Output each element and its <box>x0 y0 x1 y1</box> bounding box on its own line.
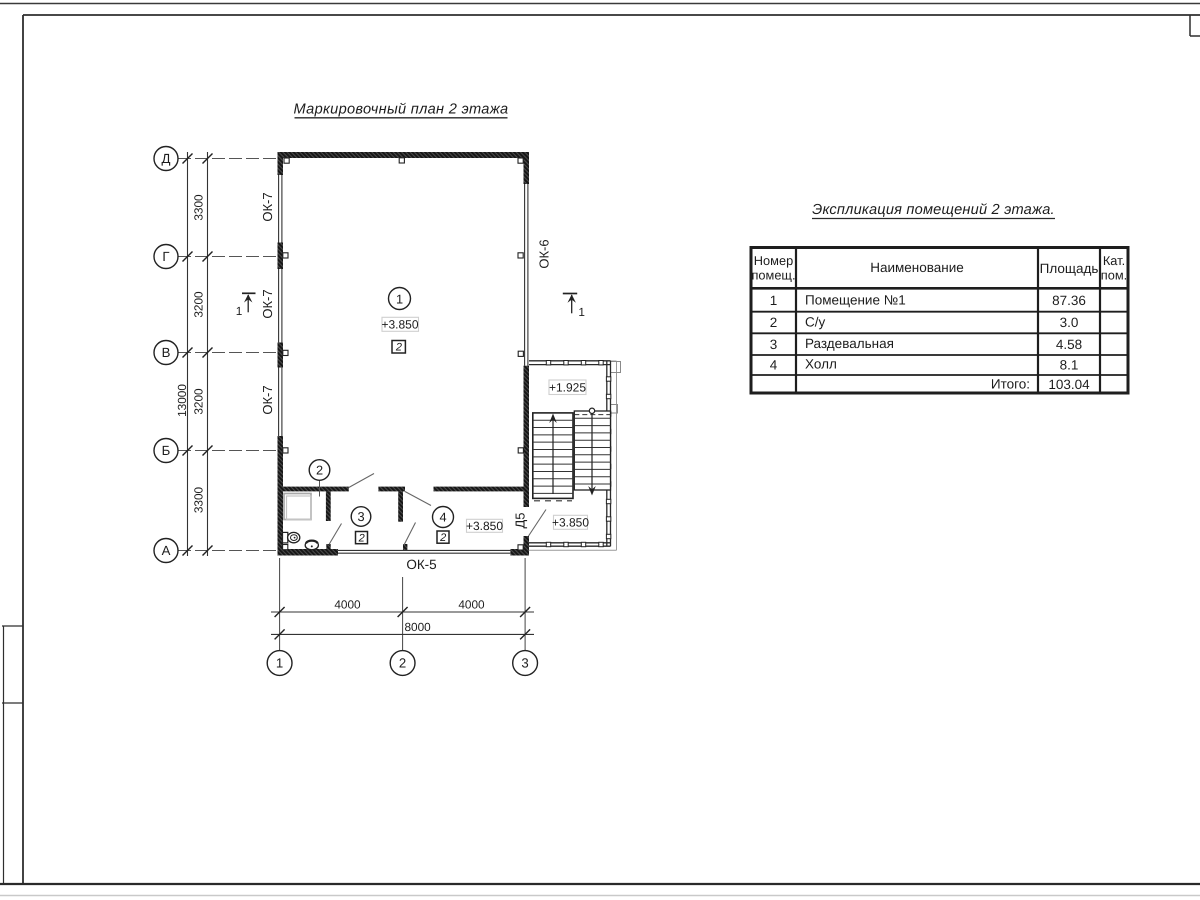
svg-text:13000: 13000 <box>175 384 189 417</box>
svg-text:4000: 4000 <box>334 598 361 612</box>
svg-text:Д: Д <box>162 151 171 166</box>
svg-text:3300: 3300 <box>192 194 206 221</box>
svg-text:пом.: пом. <box>1101 268 1127 283</box>
svg-text:Б: Б <box>162 443 171 458</box>
svg-text:ОК-7: ОК-7 <box>260 289 275 318</box>
svg-text:помещ.: помещ. <box>751 268 795 283</box>
svg-text:3: 3 <box>521 656 528 671</box>
svg-text:С/у: С/у <box>805 314 826 329</box>
svg-text:Номер: Номер <box>754 253 793 268</box>
svg-text:103.04: 103.04 <box>1048 377 1090 392</box>
svg-text:+3.850: +3.850 <box>381 318 418 332</box>
svg-text:ОК-5: ОК-5 <box>406 557 436 572</box>
svg-text:Холл: Холл <box>805 357 837 372</box>
svg-text:2: 2 <box>395 342 402 354</box>
svg-text:ОК-7: ОК-7 <box>260 385 275 414</box>
svg-text:8.1: 8.1 <box>1060 357 1079 372</box>
svg-text:3: 3 <box>770 337 778 352</box>
svg-text:1: 1 <box>578 305 585 319</box>
svg-text:В: В <box>162 345 171 360</box>
svg-text:Д5: Д5 <box>513 512 528 528</box>
svg-text:Маркировочный план 2 этажа: Маркировочный план 2 этажа <box>294 102 509 118</box>
svg-text:2: 2 <box>399 656 406 671</box>
svg-text:1: 1 <box>236 304 243 318</box>
svg-text:Г: Г <box>162 249 169 264</box>
svg-text:+3.850: +3.850 <box>466 519 503 533</box>
svg-text:3200: 3200 <box>192 388 206 415</box>
svg-text:2: 2 <box>439 532 446 544</box>
svg-text:8000: 8000 <box>405 620 432 634</box>
svg-text:+1.925: +1.925 <box>549 381 586 395</box>
svg-text:Итого:: Итого: <box>991 377 1030 392</box>
svg-text:3.0: 3.0 <box>1060 315 1079 330</box>
svg-text:1: 1 <box>396 291 403 306</box>
svg-text:Раздевальная: Раздевальная <box>805 336 894 351</box>
svg-text:ОК-6: ОК-6 <box>537 239 552 268</box>
svg-text:3: 3 <box>357 509 364 524</box>
svg-text:Площадь: Площадь <box>1040 261 1099 276</box>
svg-text:4: 4 <box>770 357 778 372</box>
svg-text:1: 1 <box>770 293 778 308</box>
svg-text:3300: 3300 <box>192 486 206 513</box>
svg-text:Наименование: Наименование <box>870 260 964 275</box>
svg-text:4000: 4000 <box>458 598 485 612</box>
svg-text:2: 2 <box>358 532 365 544</box>
svg-text:2: 2 <box>316 463 323 478</box>
svg-text:Помещение №1: Помещение №1 <box>805 292 906 307</box>
svg-text:87.36: 87.36 <box>1052 293 1086 308</box>
svg-text:4.58: 4.58 <box>1056 337 1082 352</box>
svg-text:Экспликация помещений 2 этажа.: Экспликация помещений 2 этажа. <box>812 202 1055 218</box>
svg-text:2: 2 <box>770 315 778 330</box>
svg-text:Кат.: Кат. <box>1103 253 1125 268</box>
svg-text:ОК-7: ОК-7 <box>260 192 275 221</box>
svg-text:3200: 3200 <box>192 291 206 318</box>
svg-text:+3.850: +3.850 <box>552 516 589 530</box>
svg-text:1: 1 <box>276 656 283 671</box>
svg-text:4: 4 <box>439 510 446 525</box>
svg-text:А: А <box>162 543 171 558</box>
